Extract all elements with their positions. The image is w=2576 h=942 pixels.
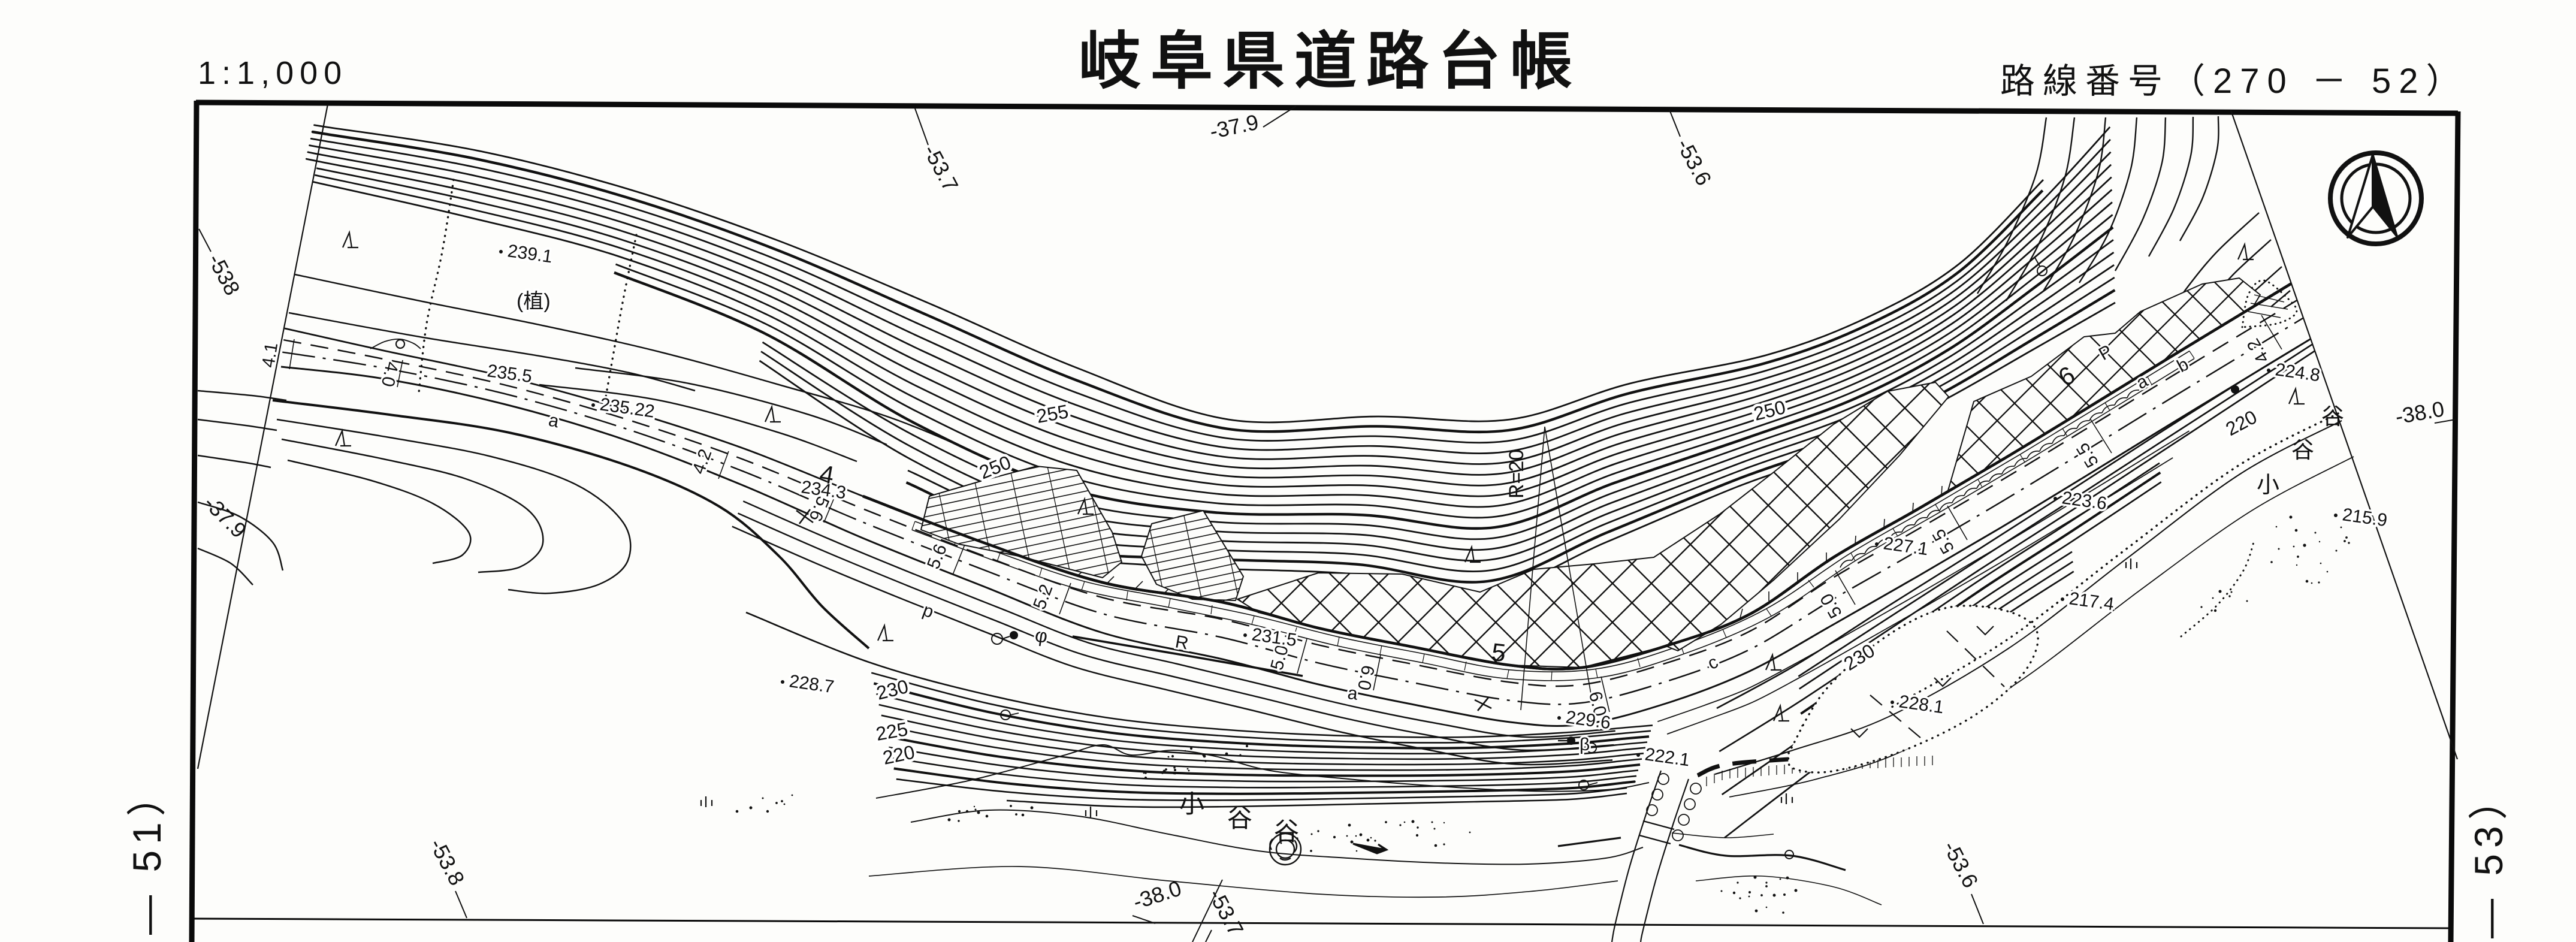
svg-text:5: 5 bbox=[1490, 638, 1507, 667]
svg-text:― 53）: ― 53） bbox=[2466, 774, 2511, 938]
svg-text:小: 小 bbox=[1179, 790, 1204, 818]
svg-text:β: β bbox=[1580, 735, 1590, 754]
svg-text:谷: 谷 bbox=[2291, 438, 2314, 463]
svg-text:小: 小 bbox=[2257, 473, 2279, 498]
svg-text:谷: 谷 bbox=[1274, 817, 1299, 846]
svg-text:谷: 谷 bbox=[1227, 804, 1252, 832]
svg-text:(植): (植) bbox=[517, 290, 551, 313]
svg-text:岐阜県道路台帳: 岐阜県道路台帳 bbox=[1079, 27, 1582, 96]
svg-text:谷: 谷 bbox=[2321, 404, 2344, 430]
svg-text:1:1,000: 1:1,000 bbox=[198, 55, 348, 91]
svg-text:― 51）: ― 51） bbox=[125, 771, 169, 935]
svg-text:R=20: R=20 bbox=[1505, 449, 1528, 499]
svg-text:路線番号（270 － 52）: 路線番号（270 － 52） bbox=[2000, 62, 2469, 101]
svg-text:4.1: 4.1 bbox=[258, 341, 282, 369]
